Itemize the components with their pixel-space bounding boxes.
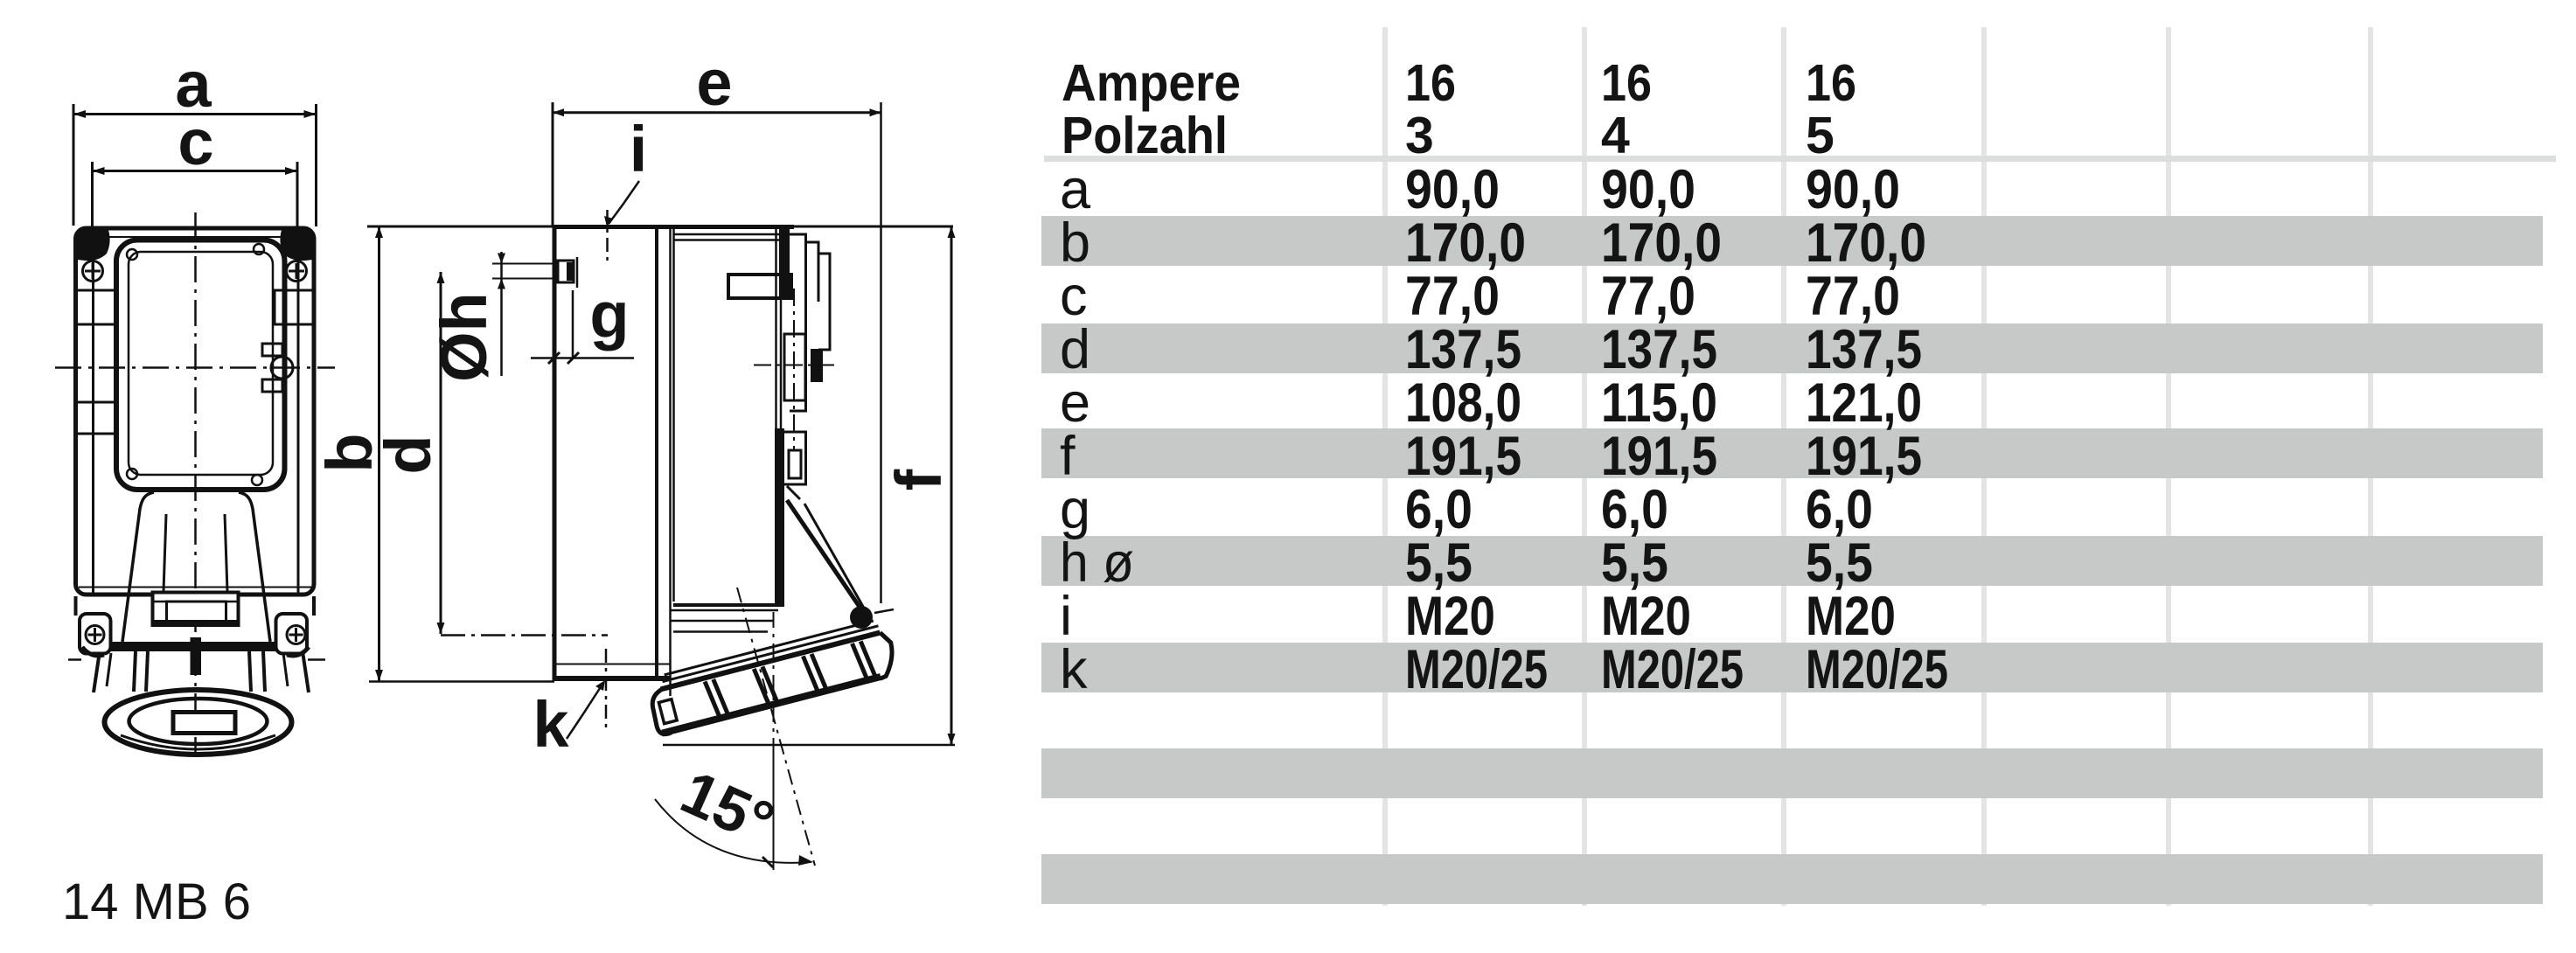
svg-text:b: b xyxy=(1060,212,1090,274)
svg-text:137,5: 137,5 xyxy=(1806,319,1922,380)
svg-text:191,5: 191,5 xyxy=(1806,426,1922,487)
svg-text:c: c xyxy=(178,106,213,178)
svg-text:5,5: 5,5 xyxy=(1601,532,1668,594)
svg-text:M20/25: M20/25 xyxy=(1601,639,1744,700)
svg-text:h ø: h ø xyxy=(1060,532,1134,594)
svg-text:77,0: 77,0 xyxy=(1601,266,1695,327)
svg-text:77,0: 77,0 xyxy=(1405,266,1500,327)
svg-text:115,0: 115,0 xyxy=(1601,372,1717,434)
svg-text:108,0: 108,0 xyxy=(1405,372,1521,434)
svg-text:6,0: 6,0 xyxy=(1601,479,1668,540)
svg-text:170,0: 170,0 xyxy=(1806,212,1926,274)
svg-text:6,0: 6,0 xyxy=(1405,479,1472,540)
svg-text:15°: 15° xyxy=(672,757,783,857)
svg-text:121,0: 121,0 xyxy=(1806,372,1922,434)
svg-text:i: i xyxy=(1060,586,1072,647)
svg-text:191,5: 191,5 xyxy=(1405,426,1521,487)
svg-text:5,5: 5,5 xyxy=(1806,532,1873,594)
svg-text:e: e xyxy=(1060,372,1090,434)
svg-text:Ampere: Ampere xyxy=(1062,54,1241,112)
svg-text:Polzahl: Polzahl xyxy=(1062,107,1228,164)
svg-text:14 MB 6: 14 MB 6 xyxy=(62,873,251,930)
svg-text:M20: M20 xyxy=(1601,586,1691,647)
svg-text:f: f xyxy=(1060,426,1076,487)
svg-text:16: 16 xyxy=(1806,54,1856,112)
svg-text:M20/25: M20/25 xyxy=(1405,639,1548,700)
svg-text:e: e xyxy=(696,46,732,119)
svg-text:90,0: 90,0 xyxy=(1405,159,1500,220)
svg-text:d: d xyxy=(372,435,444,474)
svg-text:k: k xyxy=(533,688,569,761)
svg-text:16: 16 xyxy=(1405,54,1456,112)
svg-text:90,0: 90,0 xyxy=(1806,159,1900,220)
svg-text:137,5: 137,5 xyxy=(1405,319,1521,380)
svg-text:f: f xyxy=(882,469,955,490)
svg-text:137,5: 137,5 xyxy=(1601,319,1717,380)
svg-text:170,0: 170,0 xyxy=(1601,212,1722,274)
svg-text:170,0: 170,0 xyxy=(1405,212,1526,274)
svg-text:5: 5 xyxy=(1806,107,1835,164)
svg-text:i: i xyxy=(630,113,648,185)
svg-text:M20: M20 xyxy=(1806,586,1896,647)
svg-text:d: d xyxy=(1060,319,1090,380)
svg-text:M20/25: M20/25 xyxy=(1806,639,1948,700)
svg-text:g: g xyxy=(1060,479,1090,540)
svg-text:16: 16 xyxy=(1601,54,1652,112)
svg-text:77,0: 77,0 xyxy=(1806,266,1900,327)
svg-text:Øh: Øh xyxy=(428,292,500,382)
svg-text:4: 4 xyxy=(1601,107,1630,164)
svg-text:90,0: 90,0 xyxy=(1601,159,1695,220)
svg-text:g: g xyxy=(589,279,629,351)
svg-text:191,5: 191,5 xyxy=(1601,426,1717,487)
svg-text:a: a xyxy=(1060,159,1091,220)
svg-text:k: k xyxy=(1060,639,1088,700)
svg-text:5,5: 5,5 xyxy=(1405,532,1472,594)
svg-text:c: c xyxy=(1060,266,1088,327)
svg-text:M20: M20 xyxy=(1405,586,1495,647)
svg-text:3: 3 xyxy=(1405,107,1434,164)
svg-text:6,0: 6,0 xyxy=(1806,479,1873,540)
